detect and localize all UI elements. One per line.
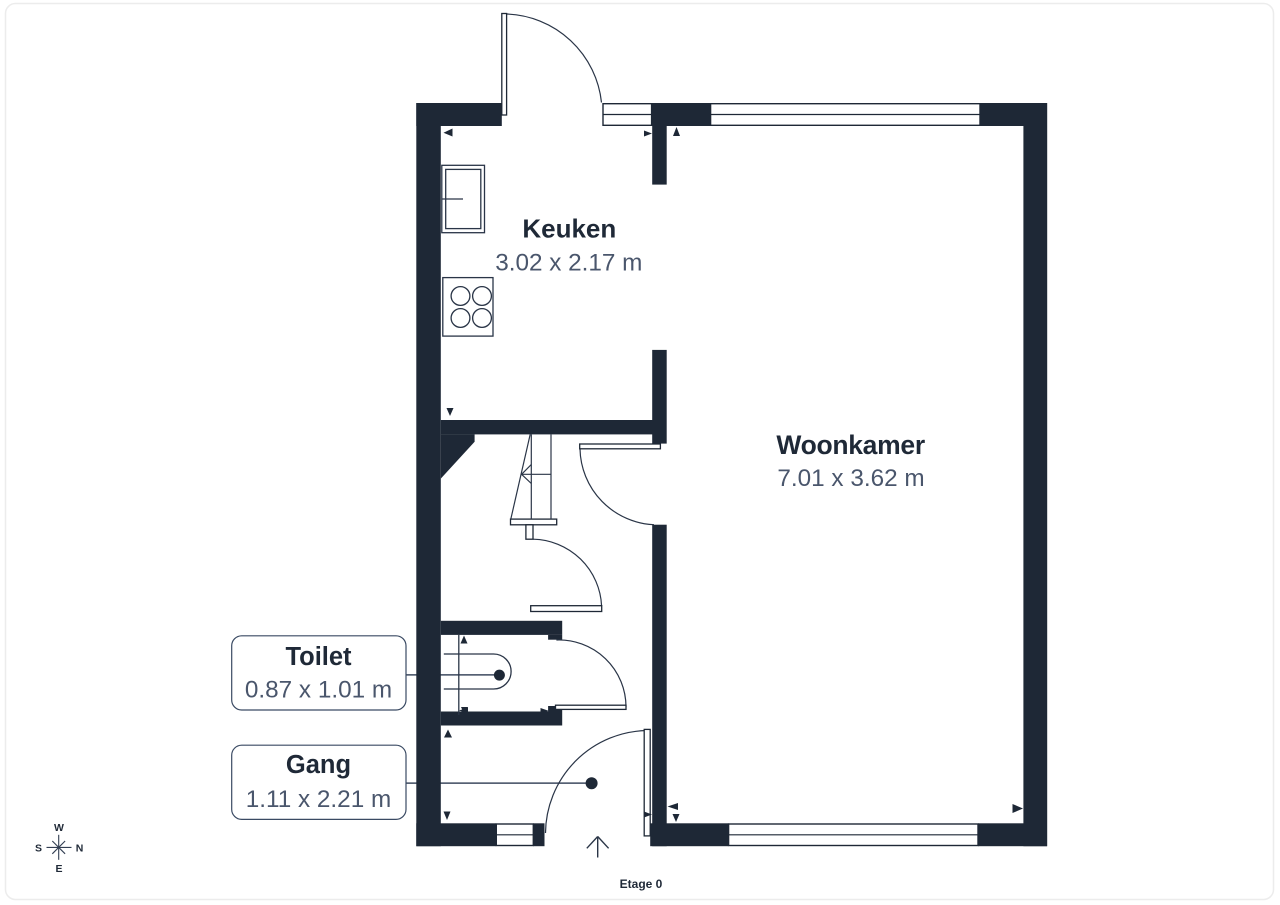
svg-text:W: W — [54, 822, 64, 834]
svg-text:N: N — [76, 843, 84, 855]
svg-text:Keuken: Keuken — [522, 214, 616, 244]
svg-text:7.01 x 3.62 m: 7.01 x 3.62 m — [777, 465, 924, 492]
svg-text:S: S — [35, 843, 42, 855]
svg-text:0.87 x 1.01 m: 0.87 x 1.01 m — [245, 677, 392, 704]
svg-text:Toilet: Toilet — [285, 643, 352, 671]
svg-text:E: E — [55, 863, 62, 875]
svg-text:1.11 x 2.21 m: 1.11 x 2.21 m — [246, 786, 391, 813]
svg-text:Woonkamer: Woonkamer — [776, 430, 925, 460]
svg-text:Gang: Gang — [286, 751, 351, 779]
svg-text:3.02 x 2.17 m: 3.02 x 2.17 m — [495, 250, 642, 277]
svg-text:Etage 0: Etage 0 — [620, 877, 663, 891]
